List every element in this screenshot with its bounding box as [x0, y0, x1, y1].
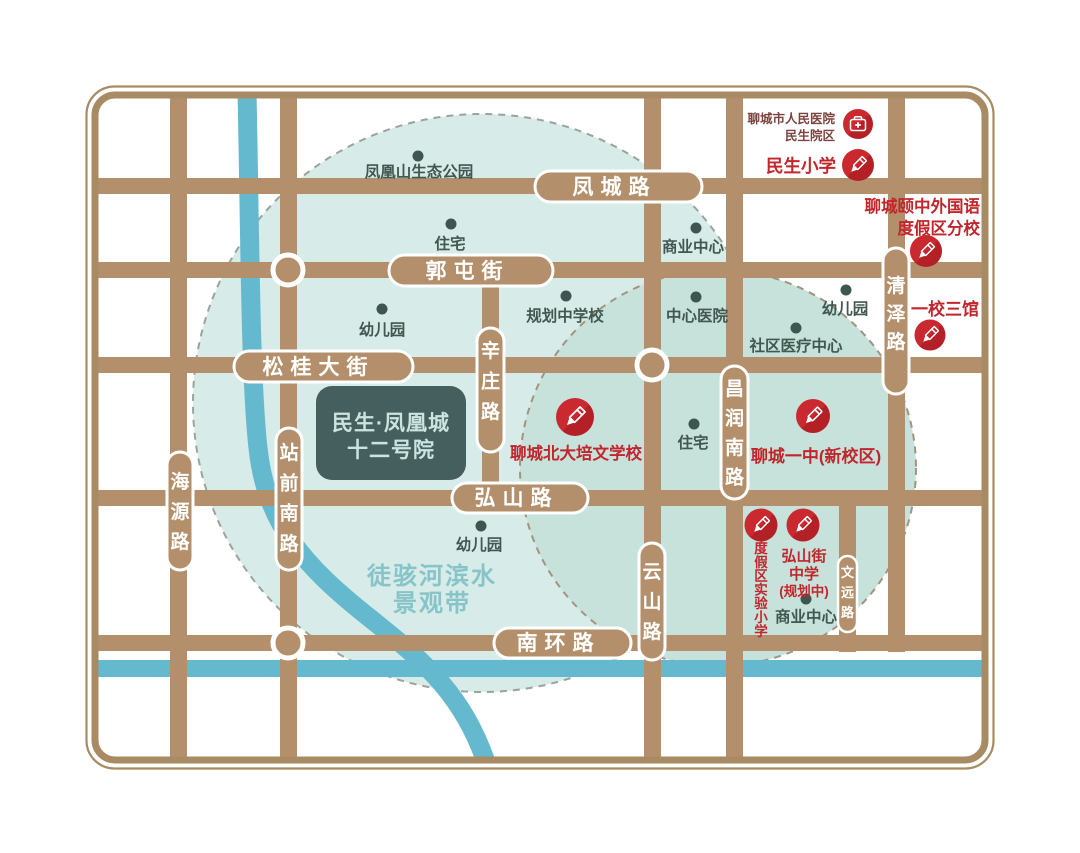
poi-label: 凤凰山生态公园 [365, 162, 474, 181]
hospital-icon [843, 109, 873, 139]
road-label-guotun: 郭屯街 [389, 255, 553, 286]
road-label-text: 郭屯街 [426, 259, 510, 283]
poi-label: 社区医疗中心 [748, 336, 843, 355]
landmark-label: 聊城一中(新校区) [751, 446, 881, 466]
project-name-line1: 民生·凤凰城 [332, 411, 450, 435]
intersection-marker [637, 350, 667, 380]
road-haiyuan [170, 95, 187, 760]
road-label-text: 海源路 [170, 470, 190, 553]
landmark-label: 度假区分校 [898, 218, 981, 238]
intersection-marker [273, 255, 303, 285]
landmark-label: 中学 [789, 565, 819, 583]
intersection-marker [273, 628, 303, 658]
poi-label: 商业中心 [662, 237, 725, 256]
landmark-label: 民生院区 [785, 128, 836, 143]
school-icon [842, 149, 874, 181]
landmark-label: 一校三馆 [911, 299, 979, 319]
landmark-label: (规划中) [779, 583, 829, 599]
project-label-box: 民生·凤凰城 十二号院 [316, 386, 466, 480]
landmark-label: 度假区实验小学 [754, 540, 768, 639]
road-label-text: 南环路 [517, 631, 601, 655]
road-label-text: 辛庄路 [481, 339, 501, 423]
school-icon [915, 320, 946, 351]
waterfront-label-line1: 徒骇河滨水 [366, 562, 497, 590]
road-label-hongshan: 弘山路 [452, 483, 588, 513]
school-icon [787, 509, 820, 542]
landmark-label: 聊城北大培文学校 [510, 443, 643, 463]
road-label-text: 凤城路 [573, 175, 657, 199]
school-icon [556, 398, 594, 436]
road-label-fengcheng: 凤城路 [535, 171, 702, 202]
landmark-label: 民生小学 [766, 156, 836, 176]
location-map-page: 徒骇河滨水 景观带 凤城路 郭屯街 松桂大街 弘山路 南环路 海源路 站前南路 … [0, 0, 1080, 853]
road-label-text: 云山路 [642, 562, 662, 643]
school-icon [745, 509, 778, 542]
poi-label: 住宅 [677, 433, 708, 452]
road-label-nanhuan: 南环路 [494, 628, 631, 658]
road-label-songgui: 松桂大街 [234, 351, 413, 382]
road-label-text: 文远路 [841, 565, 855, 620]
road-label-text: 松桂大街 [263, 355, 375, 379]
landmark-label: 聊城市人民医院 [747, 111, 835, 126]
school-icon [910, 235, 942, 267]
poi-label: 幼儿园 [359, 320, 406, 339]
road-label-wenyuan: 文远路 [838, 556, 857, 632]
river-horizontal [95, 660, 985, 677]
landmark-label: 弘山街 [781, 547, 826, 565]
poi-label: 住宅 [434, 234, 465, 253]
road-label-text: 清泽路 [886, 274, 906, 353]
poi-label: 中心医院 [666, 306, 729, 325]
road-label-zhanqiannan: 站前南路 [276, 428, 302, 570]
poi-label: 幼儿园 [456, 535, 503, 554]
road-songgui [95, 357, 985, 373]
poi-label: 商业中心 [775, 607, 838, 626]
location-map: 徒骇河滨水 景观带 凤城路 郭屯街 松桂大街 弘山路 南环路 海源路 站前南路 … [0, 0, 1080, 853]
road-label-yunshan: 云山路 [639, 543, 665, 660]
landmark-label: 聊城颐中外国语 [865, 196, 981, 216]
school-icon [796, 399, 830, 433]
waterfront-label-line2: 景观带 [393, 590, 471, 617]
poi-label: 规划中学校 [526, 306, 604, 325]
project-name-line2: 十二号院 [347, 438, 435, 462]
road-label-qingze: 清泽路 [883, 248, 909, 394]
road-label-haiyuan: 海源路 [167, 452, 193, 570]
road-label-changrunnan: 昌润南路 [721, 366, 748, 499]
road-label-xinzhuang: 辛庄路 [477, 328, 504, 452]
road-label-text: 弘山路 [475, 486, 559, 510]
poi-label: 幼儿园 [822, 299, 869, 318]
